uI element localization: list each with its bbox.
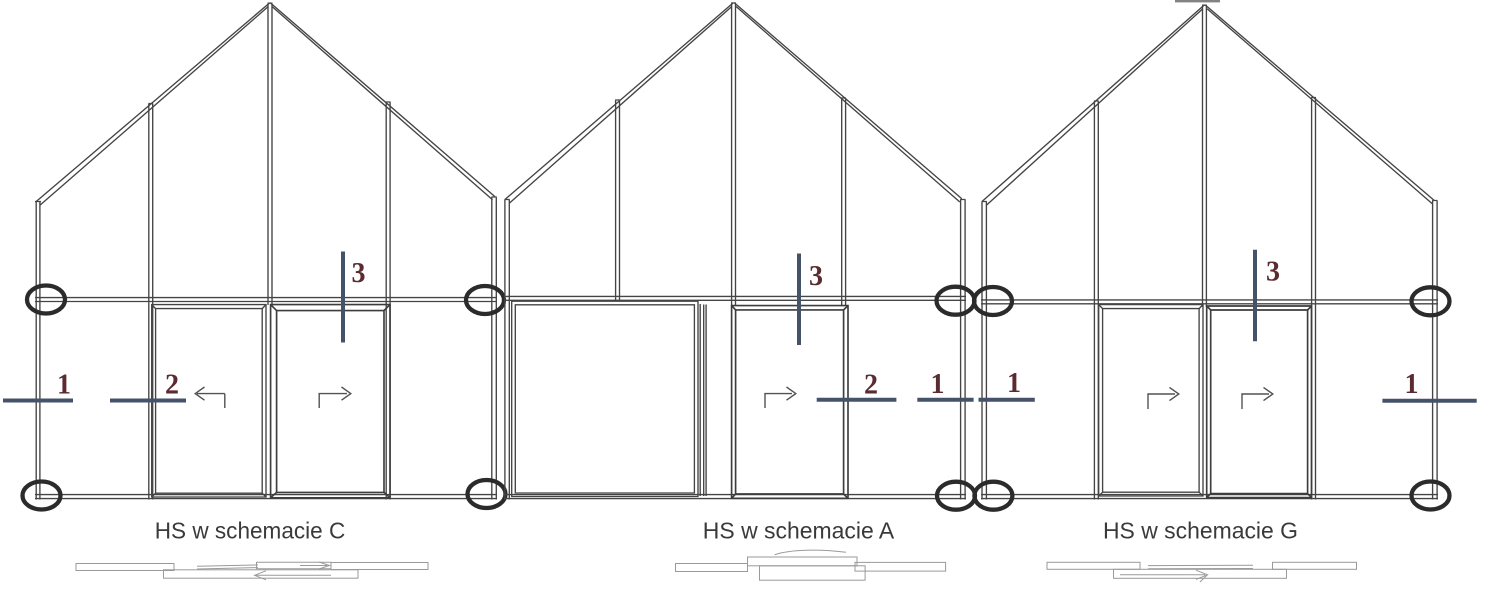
svg-text:1: 1 xyxy=(57,370,71,401)
svg-text:3: 3 xyxy=(809,261,823,292)
svg-text:HS w schemacie C: HS w schemacie C xyxy=(155,518,346,544)
svg-text:3: 3 xyxy=(352,258,366,289)
svg-text:HS w schemacie A: HS w schemacie A xyxy=(703,518,895,544)
svg-text:1: 1 xyxy=(1007,368,1021,399)
svg-text:1: 1 xyxy=(1405,369,1419,400)
svg-text:1: 1 xyxy=(931,369,945,400)
svg-text:2: 2 xyxy=(864,370,878,401)
svg-text:3: 3 xyxy=(1266,257,1280,288)
svg-text:HS w schemacie G: HS w schemacie G xyxy=(1103,518,1298,544)
svg-text:2: 2 xyxy=(165,370,179,401)
